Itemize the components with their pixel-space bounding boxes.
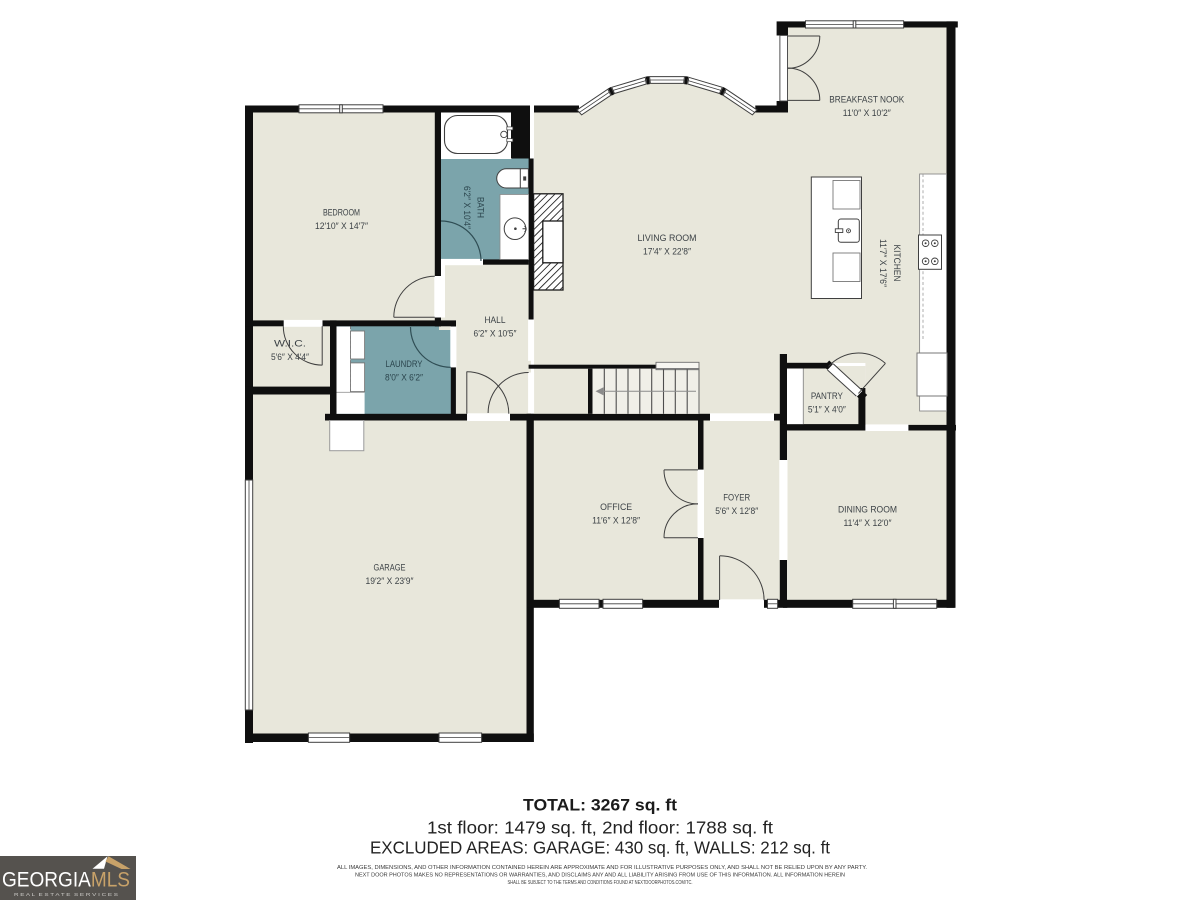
svg-text:KITCHEN: KITCHEN	[892, 245, 903, 282]
svg-text:FOYER: FOYER	[723, 492, 750, 503]
svg-text:BATH: BATH	[476, 197, 487, 218]
svg-text:R E A L E S T A T E S E R V: R E A L E S T A T E S E R V I C E S	[14, 892, 118, 898]
svg-text:BREAKFAST NOOK: BREAKFAST NOOK	[829, 93, 905, 104]
svg-text:LIVING ROOM: LIVING ROOM	[638, 232, 697, 243]
svg-text:DINING ROOM: DINING ROOM	[838, 504, 897, 515]
svg-text:5′1″ X 4′0″: 5′1″ X 4′0″	[808, 404, 847, 415]
svg-text:19′2″ X 23′9″: 19′2″ X 23′9″	[366, 575, 415, 586]
svg-text:LAUNDRY: LAUNDRY	[386, 358, 424, 369]
svg-text:HALL: HALL	[485, 314, 506, 325]
svg-text:TOTAL: 3267 sq. ft: TOTAL: 3267 sq. ft	[523, 797, 678, 815]
svg-text:GARAGE: GARAGE	[374, 561, 406, 572]
svg-text:BEDROOM: BEDROOM	[323, 207, 360, 218]
svg-text:5′6″ X 12′8″: 5′6″ X 12′8″	[715, 505, 759, 516]
svg-text:17′4″ X 22′8″: 17′4″ X 22′8″	[643, 246, 692, 257]
svg-text:EXCLUDED AREAS: GARAGE: 430 sq: EXCLUDED AREAS: GARAGE: 430 sq. ft, WALL…	[370, 838, 830, 858]
svg-text:5′6″ X 4′4″: 5′6″ X 4′4″	[271, 351, 310, 362]
svg-text:NEXT DOOR PHOTOS MAKES NO REPR: NEXT DOOR PHOTOS MAKES NO REPRESENTATION…	[355, 873, 845, 879]
svg-text:6′2″ X 10′5″: 6′2″ X 10′5″	[474, 328, 518, 339]
svg-text:1st floor: 1479 sq. ft, 2nd fl: 1st floor: 1479 sq. ft, 2nd floor: 1788 …	[427, 818, 773, 838]
svg-text:11′0″ X 10′2″: 11′0″ X 10′2″	[843, 107, 892, 118]
svg-text:6′2″ X 10′4″: 6′2″ X 10′4″	[462, 186, 473, 230]
svg-text:12′10″ X 14′7″: 12′10″ X 14′7″	[315, 220, 369, 231]
svg-text:W.I.C.: W.I.C.	[274, 338, 306, 349]
svg-text:GEORGIAMLS: GEORGIAMLS	[2, 869, 130, 892]
svg-text:8′0″ X 6′2″: 8′0″ X 6′2″	[385, 372, 424, 383]
svg-text:SHALL BE SUBJECT TO THE TERMS: SHALL BE SUBJECT TO THE TERMS AND CONDIT…	[508, 880, 693, 886]
svg-text:11′4″ X 12′0″: 11′4″ X 12′0″	[844, 517, 893, 528]
svg-text:OFFICE: OFFICE	[600, 501, 632, 512]
svg-text:PANTRY: PANTRY	[811, 390, 844, 401]
svg-text:11′7″ X 17′6″: 11′7″ X 17′6″	[878, 239, 889, 288]
svg-text:ALL IMAGES, DIMENSIONS, AND OT: ALL IMAGES, DIMENSIONS, AND OTHER INFORM…	[337, 865, 867, 871]
svg-text:11′6″ X 12′8″: 11′6″ X 12′8″	[592, 514, 641, 525]
